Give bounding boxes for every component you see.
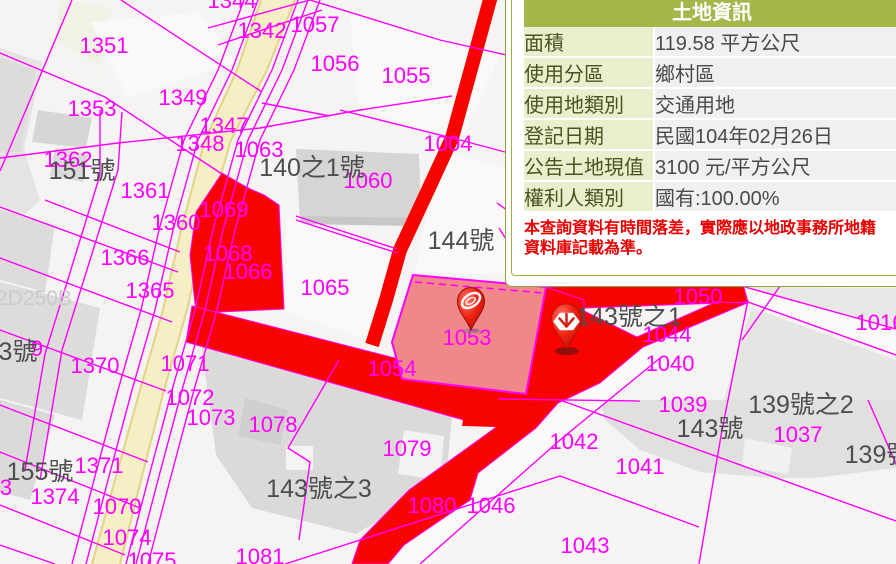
svg-text:1016: 1016 [856,310,896,335]
svg-text:1004: 1004 [424,131,473,156]
svg-text:140之1號: 140之1號 [259,154,365,182]
svg-text:1037: 1037 [774,422,823,447]
svg-text:1056: 1056 [311,51,360,76]
svg-text:1349: 1349 [159,85,208,110]
svg-text:1342: 1342 [238,18,287,43]
svg-text:1351: 1351 [80,33,129,58]
svg-text:1080: 1080 [408,493,457,518]
svg-text:1348: 1348 [176,131,225,156]
svg-text:151號: 151號 [49,157,116,185]
svg-text:1070: 1070 [93,494,142,519]
svg-text:144號: 144號 [428,227,495,255]
svg-text:1081: 1081 [236,544,285,564]
svg-text:1366: 1366 [101,245,150,270]
svg-text:2D250B: 2D250B [0,287,72,310]
svg-text:1053: 1053 [443,325,492,350]
svg-text:1071: 1071 [161,351,210,376]
svg-text:143號之3: 143號之3 [266,475,372,503]
svg-text:139號之2: 139號之2 [748,391,854,419]
svg-text:1365: 1365 [126,278,175,303]
svg-text:1371: 1371 [75,453,124,478]
svg-text:1054: 1054 [368,356,417,381]
svg-text:1069: 1069 [200,197,249,222]
svg-text:1041: 1041 [616,454,665,479]
svg-text:1361: 1361 [121,178,170,203]
svg-text:1374: 1374 [31,484,80,509]
svg-text:1046: 1046 [467,493,516,518]
svg-text:1057: 1057 [291,12,340,37]
svg-text:1055: 1055 [382,63,431,88]
svg-text:1066: 1066 [224,259,273,284]
svg-text:1039: 1039 [659,392,708,417]
svg-text:1360: 1360 [152,210,201,235]
svg-text:3號: 3號 [0,338,37,366]
svg-text:143號之1: 143號之1 [576,303,682,331]
svg-text:1073: 1073 [187,405,236,430]
svg-text:1042: 1042 [550,429,599,454]
svg-text:1370: 1370 [71,353,120,378]
svg-text:139號: 139號 [845,441,896,469]
svg-text:1353: 1353 [68,96,117,121]
svg-text:1079: 1079 [383,436,432,461]
svg-text:1075: 1075 [128,548,177,564]
svg-text:1078: 1078 [249,412,298,437]
svg-text:1344: 1344 [208,0,257,13]
svg-text:155號: 155號 [7,458,74,486]
svg-text:143號: 143號 [677,415,744,443]
svg-text:1040: 1040 [646,351,695,376]
svg-text:1074: 1074 [103,525,152,550]
svg-text:1043: 1043 [561,533,610,558]
svg-text:1065: 1065 [301,275,350,300]
